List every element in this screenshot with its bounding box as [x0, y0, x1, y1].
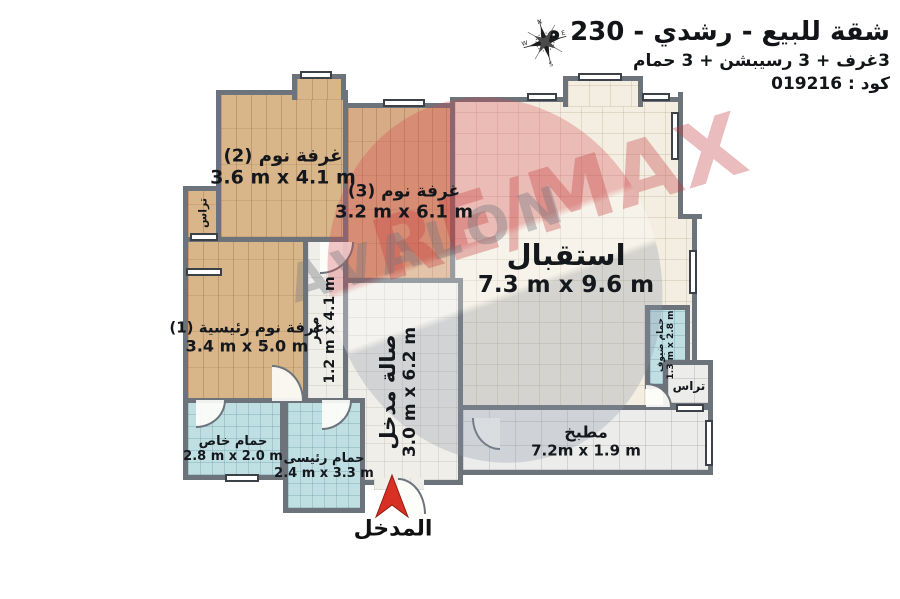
label-kitchen: مطبخ 7.2m x 1.9 m [531, 423, 641, 460]
window-master-top [190, 233, 218, 241]
window-reception-right-lower [689, 250, 697, 294]
listing-code: كود : 019216 [460, 74, 890, 94]
room-dims: 2.4 m x 3.3 m [274, 466, 374, 481]
room-name: غرفة نوم رئيسية (1) [169, 319, 324, 337]
label-hall: صالة مدخل 3.0 m x 6.2 m [376, 327, 420, 457]
room-name: حمام خاص [183, 434, 283, 449]
room-dims: 7.2m x 1.9 m [531, 442, 641, 460]
room-name: ممر [306, 276, 322, 383]
room-name: حمام ضيوف [656, 311, 666, 380]
entrance-arrow-icon [372, 472, 412, 520]
room-name: تراس [197, 198, 210, 228]
floor-plan-page: شقة للبيع - رشدي - 230 م 3غرف + 3 رسيبشن… [0, 0, 900, 599]
room-dims: 3.2 m x 6.1 m [335, 202, 473, 223]
room-name: مطبخ [531, 423, 641, 442]
window-bath-private-bottom [225, 474, 259, 482]
compass-n: N [537, 18, 543, 26]
window-terrace-right-bottom [676, 404, 704, 412]
window-bedroom2-bump [300, 71, 332, 79]
room-dims: 7.3 m x 9.6 m [478, 272, 654, 298]
label-master-bedroom: غرفة نوم رئيسية (1) 3.4 m x 5.0 m [169, 319, 324, 356]
room-name: صالة مدخل [376, 327, 400, 457]
room-dims: 1.3 m x 2.8 m [666, 311, 676, 380]
label-corridor: ممر 1.2 m x 4.1 m [306, 276, 338, 383]
window-reception-top-left [527, 93, 557, 101]
label-terrace-right: تراس [673, 379, 706, 393]
room-dims: 2.8 m x 2.0 m [183, 449, 283, 464]
label-bath-private: حمام خاص 2.8 m x 2.0 m [183, 434, 283, 464]
label-bedroom2: غرفة نوم (2) 3.6 m x 4.1 m [210, 146, 356, 189]
window-kitchen-right [705, 420, 713, 466]
label-bath-guest: حمام ضيوف 1.3 m x 2.8 m [656, 311, 676, 380]
window-terrace-left [186, 268, 222, 276]
room-name: حمام رئيسى [274, 451, 374, 466]
label-terrace-left: تراس [197, 198, 210, 228]
room-dims: 3.4 m x 5.0 m [169, 337, 324, 356]
compass-w: W [521, 40, 529, 48]
compass-e: E [561, 30, 567, 38]
room-dims: 3.0 m x 6.2 m [400, 327, 420, 457]
window-bedroom3-top [383, 99, 425, 107]
entrance-label: المدخل [354, 517, 433, 542]
room-dims: 1.2 m x 4.1 m [322, 276, 338, 383]
label-bedroom3: غرفة نوم (3) 3.2 m x 6.1 m [335, 182, 473, 223]
label-bath-main: حمام رئيسى 2.4 m x 3.3 m [274, 451, 374, 481]
room-name: استقبال [478, 238, 654, 272]
room-name: تراس [673, 379, 706, 393]
room-name: غرفة نوم (2) [210, 146, 356, 167]
room-dims: 3.6 m x 4.1 m [210, 167, 356, 189]
label-reception: استقبال 7.3 m x 9.6 m [478, 238, 654, 298]
window-reception-top-right [642, 93, 670, 101]
room-name: غرفة نوم (3) [335, 182, 473, 202]
